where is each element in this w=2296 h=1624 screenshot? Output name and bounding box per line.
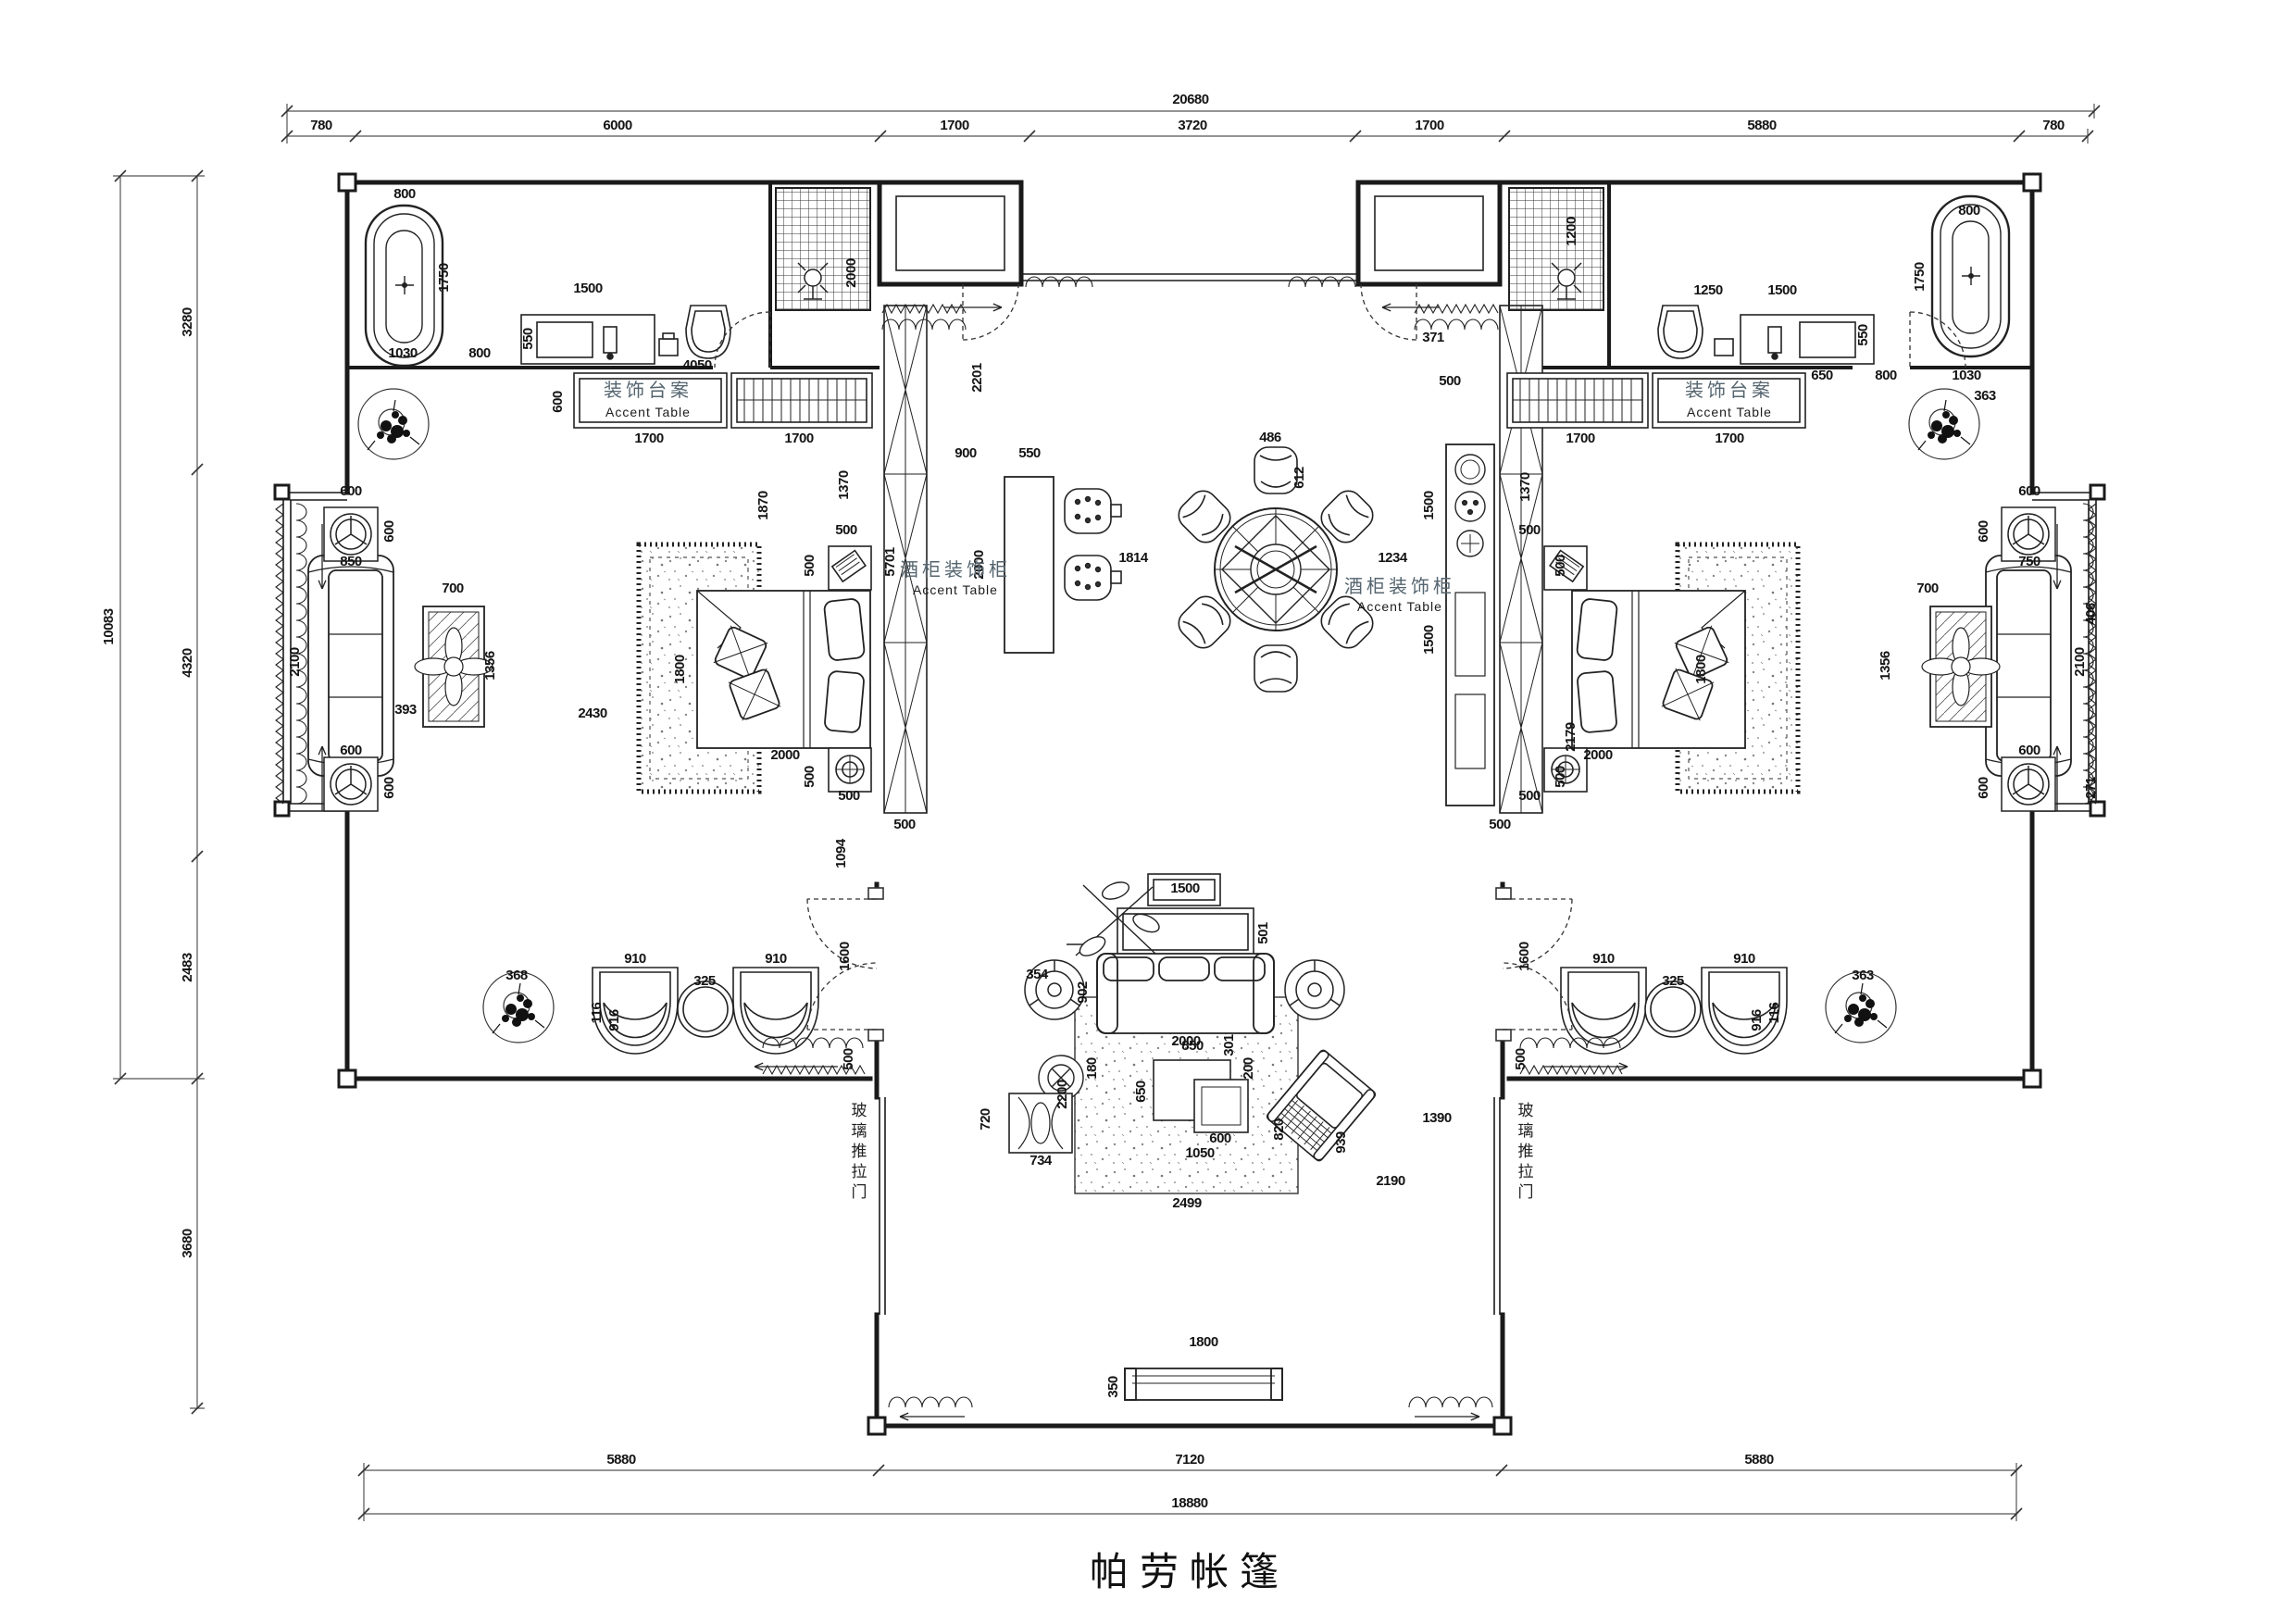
top-chain-label: 780	[310, 118, 332, 133]
porch-rooms	[896, 196, 1483, 270]
right-bathroom-label: 1250	[1693, 282, 1723, 298]
right-bay-table	[2002, 757, 2055, 811]
right-bedroom-label: 600	[2018, 743, 2040, 758]
kitchen-label: 500	[1439, 373, 1461, 389]
bottom-chain-label: 5880	[606, 1452, 636, 1468]
left-bedroom-label: 600	[381, 520, 397, 543]
top-chain-label: 20680	[1172, 92, 1208, 107]
left-cabinet-bar-label: 5701	[882, 547, 898, 577]
dining-label: 1234	[1378, 550, 1408, 566]
right-wing-label: 325	[1662, 973, 1684, 989]
left-bedroom-label: 500	[835, 522, 857, 538]
left-wing-label: 116	[589, 1002, 605, 1023]
living-sofa	[1097, 954, 1274, 1033]
living-room-label: 501	[1255, 922, 1271, 944]
top-chain-label: 3720	[1178, 118, 1207, 133]
right-bedroom-label: 1356	[1878, 651, 1893, 681]
left-bathroom-label: 1700	[784, 431, 814, 446]
right-lounge-chair	[1561, 968, 1646, 1054]
left-cabinet-bar-label: Accent Table	[913, 582, 998, 597]
left-bedroom-label: 600	[340, 483, 362, 499]
left-bathroom-label: 800	[468, 345, 491, 361]
right-wing-label: 910	[1733, 951, 1755, 967]
left-coffee-table	[415, 606, 493, 727]
left-shower	[776, 188, 870, 310]
top-chain-label: 6000	[603, 118, 632, 133]
living-room-label: 1500	[1170, 881, 1200, 896]
top-chain-label: 780	[2042, 118, 2065, 133]
dining-table	[1215, 508, 1337, 631]
kitchen-counter	[1446, 444, 1494, 806]
living-room-label: 2499	[1172, 1195, 1202, 1211]
living-room-label: 2190	[1376, 1173, 1405, 1189]
bottom-chain-label: 5880	[1744, 1452, 1774, 1468]
living-room-label: 301	[1221, 1034, 1237, 1056]
left-bathroom-label: 600	[550, 391, 566, 413]
kitchen-label: 1500	[1421, 491, 1437, 520]
living-room-label: 734	[1029, 1153, 1053, 1168]
kitchen-label: 500	[1489, 817, 1511, 832]
bottom-chain-label: 7120	[1175, 1452, 1204, 1468]
kitchen-label: 2179	[1563, 722, 1578, 752]
left-bathroom-label: 800	[393, 186, 416, 202]
top-chain-label: 5880	[1747, 118, 1777, 133]
living-floor-lamp	[1285, 960, 1344, 1019]
kitchen-label: 1370	[1517, 472, 1533, 502]
living-room-label: 2200	[1054, 1080, 1070, 1109]
left-nightstand	[829, 748, 871, 792]
left-bedroom-label: 600	[340, 743, 362, 758]
left-bay-table	[324, 757, 378, 811]
left-bedroom-label: 1356	[482, 651, 498, 681]
left-bedroom-label: 1370	[836, 470, 852, 500]
right-bathroom-label: 800	[1875, 368, 1897, 383]
right-cabinet-label: Accent Table	[1357, 599, 1442, 614]
right-wing-label: 910	[1592, 951, 1615, 967]
bottom-chain-label: 18880	[1171, 1495, 1207, 1511]
right-bathroom-label: 1030	[1952, 368, 1981, 383]
left-bedroom-label: 700	[442, 581, 464, 596]
left-vanity	[521, 315, 678, 364]
right-shower	[1509, 188, 1603, 310]
right-toilet	[1658, 306, 1703, 358]
terrace-bench	[1125, 1368, 1282, 1400]
dining-label: 1814	[1118, 550, 1149, 566]
right-bath-plant	[1909, 389, 1979, 459]
living-room-label: 600	[1209, 1131, 1231, 1146]
decor-hatches	[276, 277, 2096, 1420]
right-bedroom-label: 500	[1553, 555, 1568, 577]
left-wing-table	[678, 981, 733, 1037]
living-room-label: 650	[1133, 1081, 1149, 1103]
left-nightstand	[829, 546, 871, 590]
left-bed	[697, 591, 870, 748]
right-bedroom-label: 1800	[1693, 655, 1709, 684]
right-bedroom-label: 271	[2083, 777, 2099, 799]
right-bedroom-label: 750	[2018, 554, 2040, 569]
left-bedroom-label: 500	[802, 555, 817, 577]
kitchen-label: 371	[1422, 330, 1444, 345]
right-bedroom-label: 500	[1518, 522, 1541, 538]
left-wing-label: 910	[765, 951, 787, 967]
left-chain-label: 4320	[180, 648, 195, 678]
left-wing-label: 910	[624, 951, 646, 967]
left-wing-label: 500	[841, 1048, 856, 1070]
right-bathroom-label: 550	[1855, 324, 1871, 346]
bar-counter	[1004, 477, 1054, 653]
left-chain-label: 10083	[101, 608, 117, 644]
right-bedroom-label: 2100	[2072, 647, 2088, 677]
left-bathroom-label: 装饰台案	[604, 380, 693, 401]
terrace-label: 1800	[1189, 1334, 1218, 1350]
left-wing-label: 368	[505, 968, 528, 983]
living-room-label: 1390	[1422, 1110, 1452, 1126]
left-bedroom-label: 500	[802, 766, 817, 788]
left-bedroom-label: 500	[838, 788, 860, 804]
left-bathroom-label: 1500	[573, 281, 603, 296]
left-bedroom-label: 2430	[578, 706, 607, 721]
right-bathroom-label: 1500	[1767, 282, 1797, 298]
top-chain-label: 1700	[1415, 118, 1444, 133]
left-bathroom-label: 2000	[843, 258, 859, 288]
left-bedroom-label: 2000	[770, 747, 800, 763]
right-bedroom-label: 600	[1976, 520, 1991, 543]
right-bathroom-label: 1700	[1566, 431, 1595, 446]
left-cabinet-bar-label: 900	[955, 445, 977, 461]
right-bathroom-label: 800	[1958, 203, 1980, 219]
right-wing-label: 500	[1513, 1048, 1529, 1070]
left-bedroom-label: 2100	[287, 647, 303, 677]
living-room-label: 180	[1084, 1057, 1100, 1080]
left-bathtub	[366, 206, 443, 366]
right-bathroom-label: 650	[1811, 368, 1833, 383]
left-lounge-chair	[733, 968, 818, 1054]
left-wing-label: 325	[693, 973, 716, 989]
right-wing-label: 363	[1852, 968, 1874, 983]
left-cabinet-bar-label: 酒柜装饰柜	[900, 559, 1011, 581]
right-bathroom-label: 363	[1974, 388, 1996, 404]
left-bathroom-label: 550	[520, 328, 536, 350]
left-bathroom-label: 1700	[634, 431, 664, 446]
left-bathroom-label: Accent Table	[605, 405, 691, 419]
left-chain-label: 2483	[180, 953, 195, 982]
left-cabinet-bar-label: 500	[893, 817, 916, 832]
top-chain-label: 1700	[940, 118, 969, 133]
dining-label: 486	[1259, 430, 1281, 445]
left-lounge-chair	[593, 968, 678, 1054]
drawing-title: 帕劳帐篷	[1090, 1552, 1290, 1594]
bar-stool	[1065, 556, 1121, 600]
right-vanity	[1715, 315, 1874, 364]
right-bathroom-label: Accent Table	[1687, 405, 1772, 419]
terrace-label: 玻璃推拉门	[852, 1102, 867, 1201]
right-bedroom-label: 2000	[1583, 747, 1613, 763]
left-bathroom-label: 1750	[436, 263, 452, 293]
right-cabinet-label: 酒柜装饰柜	[1344, 576, 1455, 597]
right-wing-label: 916	[1749, 1009, 1765, 1031]
left-bath-plant	[358, 389, 429, 459]
left-wing-label: 916	[606, 1009, 622, 1031]
left-bedroom-label: 600	[381, 777, 397, 799]
right-bathroom-label: 1200	[1564, 217, 1579, 246]
right-coffee-table	[1922, 606, 2000, 727]
floor-plan-canvas: 2068078060001700372017005880780100833280…	[0, 0, 2296, 1624]
left-bedroom-label: 1800	[672, 655, 688, 684]
right-bathroom-label: 1750	[1912, 262, 1928, 292]
right-bathroom-label: 1700	[1715, 431, 1744, 446]
right-bedroom-label: 600	[2018, 483, 2040, 499]
right-bed	[1572, 591, 1745, 748]
right-wing-label: 1600	[1516, 942, 1532, 971]
living-room-label: 200	[1241, 1057, 1256, 1080]
terrace-label: 350	[1105, 1376, 1121, 1398]
left-bathroom-label: 4050	[682, 357, 712, 373]
left-bedroom-label: 393	[394, 702, 417, 718]
right-bedroom-label: 700	[1916, 581, 1939, 596]
living-room-label: 850	[1181, 1038, 1204, 1054]
right-bedroom-label: 500	[1518, 788, 1541, 804]
left-toilet	[686, 306, 730, 358]
left-chain-label: 3280	[180, 307, 195, 337]
right-bedroom-label: 500	[1553, 766, 1568, 788]
right-bathtub	[1932, 196, 2009, 356]
kitchen-label: 1500	[1421, 625, 1437, 655]
living-room-label: 720	[978, 1108, 993, 1131]
living-room-label: 1050	[1185, 1145, 1215, 1161]
right-bedroom-label: 600	[1976, 777, 1991, 799]
left-chain-label: 3680	[180, 1229, 195, 1258]
dining-label: 612	[1291, 467, 1307, 489]
left-cabinet-bar-label: 550	[1018, 445, 1041, 461]
terrace-label: 玻璃推拉门	[1518, 1102, 1534, 1201]
left-bedroom-label: 1870	[755, 491, 771, 520]
living-room-label: 820	[1271, 1118, 1287, 1141]
left-wing-label: 1600	[837, 942, 853, 971]
bar-stool	[1065, 489, 1121, 533]
living-room-label: 354	[1026, 967, 1049, 982]
living-room-label: 902	[1075, 981, 1091, 1004]
right-bathroom-label: 装饰台案	[1685, 380, 1774, 401]
living-room-label: 939	[1333, 1131, 1349, 1154]
right-wing-table	[1645, 981, 1701, 1037]
right-bedroom-label: 406	[2083, 603, 2099, 625]
left-bathroom-label: 1030	[388, 345, 418, 361]
left-bedroom-label: 1094	[833, 838, 849, 868]
left-bedroom-label: 850	[340, 554, 362, 569]
left-cabinet-bar-label: 2201	[969, 363, 985, 393]
right-wing-label: 116	[1766, 1002, 1782, 1023]
